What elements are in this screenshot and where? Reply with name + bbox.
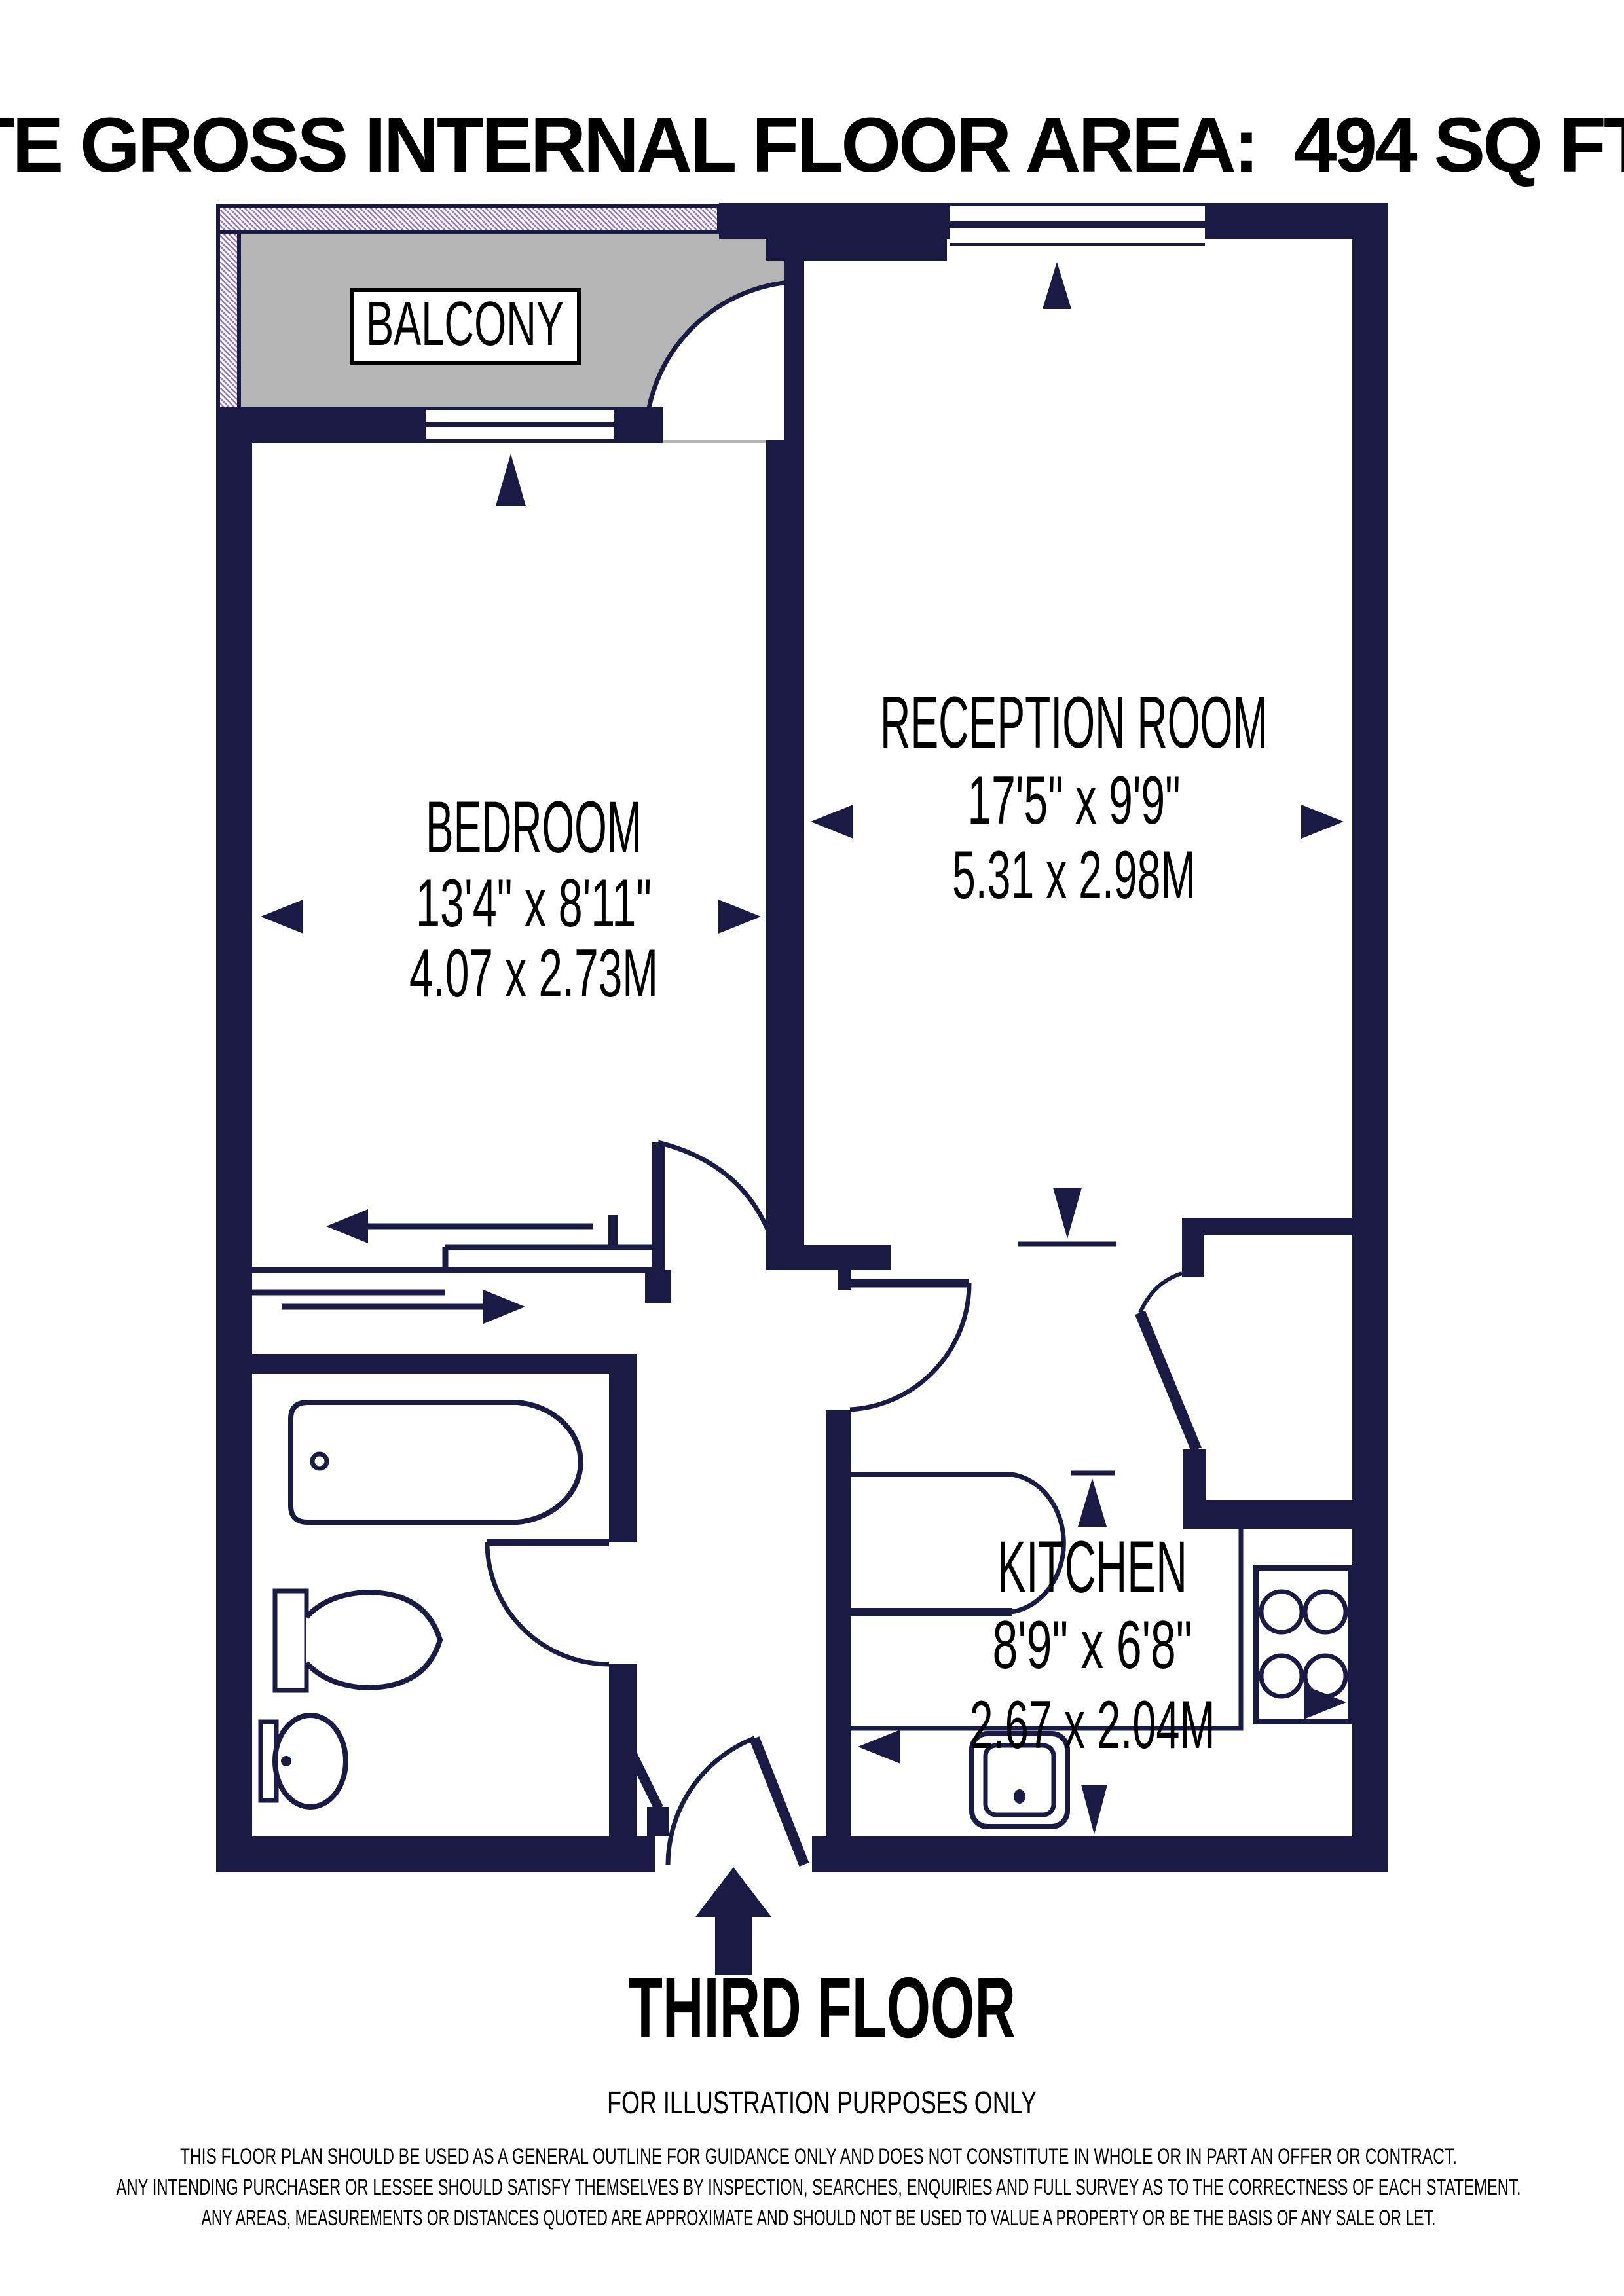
wall-bottom-left: [216, 1836, 655, 1872]
bedroom-arrow-right-icon: [718, 900, 761, 934]
entrance-arrow-icon: [695, 1867, 771, 1975]
balcony-door-leaf: [784, 261, 804, 443]
bedroom-label: BEDROOM: [426, 786, 642, 868]
bathtub: [291, 1402, 581, 1522]
disclaimer-line-1: THIS FLOOR PLAN SHOULD BE USED AS A GENE…: [180, 2144, 1457, 2169]
floorplan-image: APPROXIMATE GROSS INTERNAL FLOOR AREA: 4…: [0, 0, 1624, 2296]
wall-closet-jamb-lower: [1183, 1449, 1206, 1500]
toilet-cistern: [275, 1591, 306, 1690]
bedroom-door-arc: [658, 1142, 775, 1249]
area-value: 494 SQ FT - 45.94 SQ M: [1294, 102, 1624, 189]
area-label: APPROXIMATE GROSS INTERNAL FLOOR AREA:: [0, 102, 1257, 189]
reception-arrow-down-icon: [1053, 1188, 1082, 1239]
wall-kitchen-top-right: [1183, 1500, 1352, 1529]
wall-bathroom-right-upper: [609, 1374, 637, 1542]
reception-label: RECEPTION ROOM: [880, 682, 1268, 763]
wall-bathroom-top: [216, 1354, 637, 1374]
entrance-door-leaf: [754, 1738, 804, 1865]
toilet-bowl: [306, 1592, 440, 1688]
balcony-label: BALCONY: [366, 289, 564, 359]
closet-door-leaf: [1140, 1313, 1196, 1449]
reception-dim-metric: 5.31 x 2.98M: [952, 837, 1196, 913]
wall-hall-step: [838, 1270, 851, 1290]
hob-burner-1: [1261, 1592, 1302, 1632]
wall-right-exterior: [1352, 203, 1388, 1872]
wall-hall-chunk: [802, 1245, 891, 1270]
wall-kitchen-left: [826, 1410, 851, 1836]
kitchen-dim-metric: 2.67 x 2.04M: [970, 1687, 1215, 1763]
slide-arrow-right-icon: [483, 1290, 525, 1324]
reception-arrow-left-icon: [811, 805, 853, 839]
bedroom-arrow-left-icon: [261, 900, 303, 934]
wall-bedroom-reception: [766, 440, 804, 1270]
wall-left-exterior: [216, 407, 252, 1872]
hob-burner-2: [1305, 1592, 1346, 1632]
bathtub-tap: [312, 1454, 327, 1468]
footer: THIRD FLOOR FOR ILLUSTRATION PURPOSES ON…: [117, 1959, 1521, 2231]
kitchen-label: KITCHEN: [997, 1526, 1187, 1608]
reception-arrow-up-icon: [1043, 262, 1071, 309]
hob-burner-3: [1261, 1656, 1302, 1696]
reception-window-outer: [950, 206, 1205, 221]
balcony-rail-top: [218, 206, 719, 232]
wall-reception-top-left: [719, 203, 950, 239]
entrance-door-arc: [668, 1738, 754, 1865]
disclaimer-line-2: ANY INTENDING PURCHASER OR LESSEE SHOULD…: [117, 2175, 1521, 2200]
closet-door-arc: [1140, 1273, 1182, 1313]
bedroom-dim-metric: 4.07 x 2.73M: [409, 936, 658, 1011]
bedroom-window-mullion: [426, 422, 614, 427]
wall-reception-top-tab: [766, 239, 947, 261]
reception-dim-imperial: 17'5" x 9'9": [968, 763, 1181, 839]
bedroom-wardrobe: [252, 1209, 663, 1324]
illustration-note: FOR ILLUSTRATION PURPOSES ONLY: [607, 2086, 1037, 2121]
slide-arrow-left-icon: [326, 1209, 368, 1243]
wall-closet-top: [1182, 1218, 1352, 1235]
wall-closet-jamb-upper: [1182, 1235, 1204, 1277]
wall-entry-closet-tab2: [647, 1807, 669, 1836]
kitchen-arrow-down-icon: [1081, 1785, 1107, 1834]
reception-window-inner: [950, 228, 1205, 243]
kitchen-door-arc: [850, 1283, 969, 1410]
bathroom-door-arc: [487, 1542, 609, 1664]
wardrobe-tracks: [252, 1247, 663, 1292]
floorplan-page: APPROXIMATE GROSS INTERNAL FLOOR AREA: 4…: [0, 0, 1624, 2296]
wall-bottom-right: [812, 1836, 1388, 1872]
kitchen-dim-imperial: 8'9" x 6'8": [993, 1607, 1192, 1683]
kitchen-arrow-up-icon: [1078, 1478, 1107, 1527]
reception-arrow-right-icon: [1301, 805, 1344, 839]
wall-entry-closet-tab1: [612, 1715, 635, 1735]
bedroom-dim-imperial: 13'4" x 8'11": [416, 866, 652, 941]
basin-tap: [281, 1756, 291, 1766]
disclaimer-line-3: ANY AREAS, MEASUREMENTS OR DISTANCES QUO…: [202, 2206, 1436, 2231]
kitchen-arrow-left-icon: [858, 1730, 900, 1764]
page-title: APPROXIMATE GROSS INTERNAL FLOOR AREA: 4…: [0, 102, 1624, 189]
bedroom-arrow-up-icon: [496, 454, 526, 506]
sink-drain: [1014, 1789, 1025, 1804]
floor-label: THIRD FLOOR: [628, 1959, 1016, 2056]
